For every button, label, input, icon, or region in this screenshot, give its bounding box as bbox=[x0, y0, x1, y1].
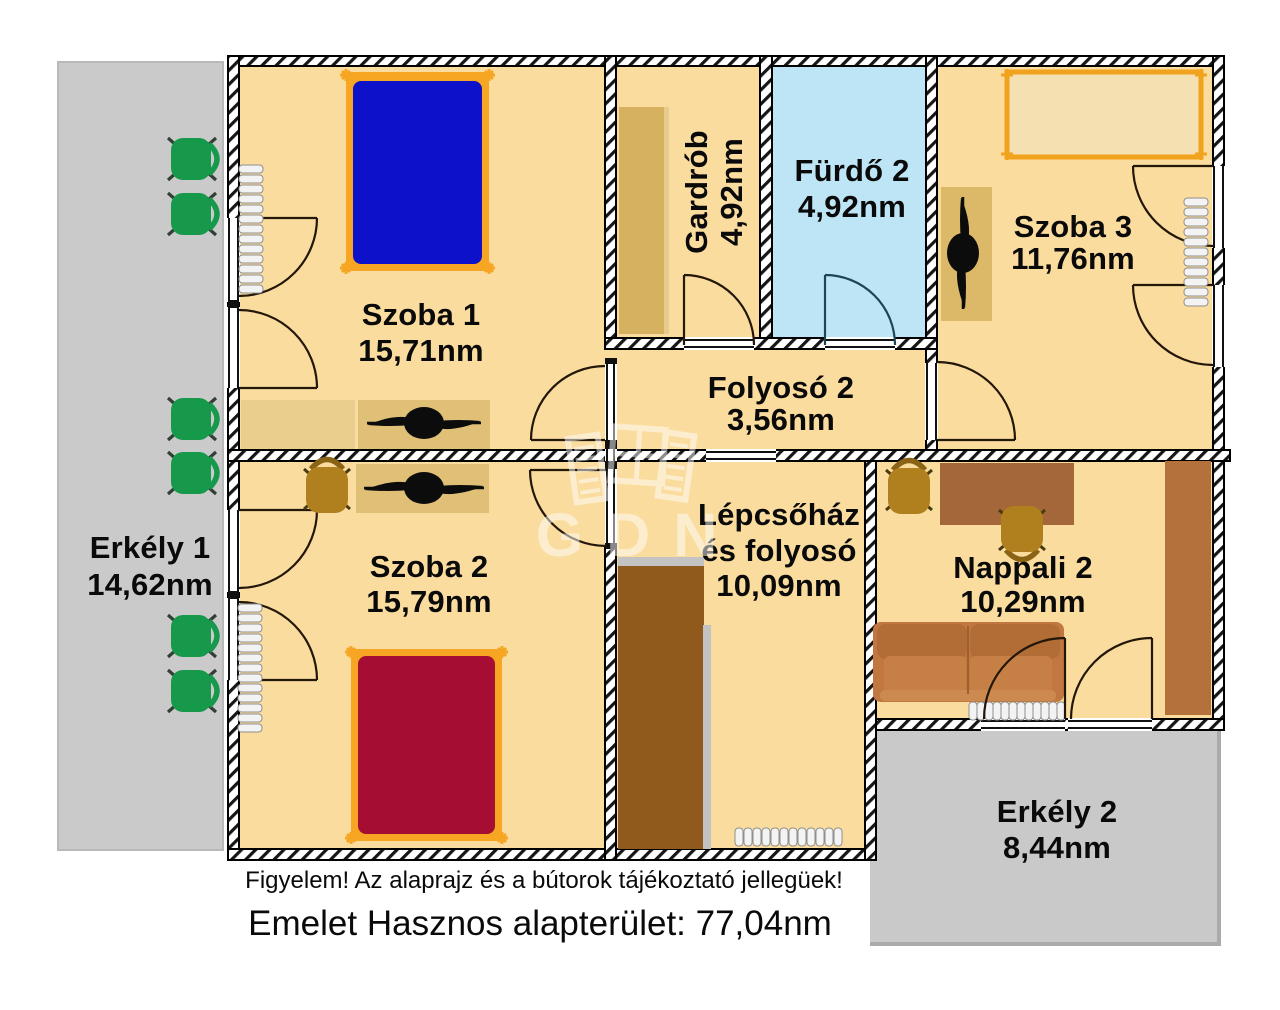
svg-text:Nappali 2: Nappali 2 bbox=[953, 550, 1093, 585]
svg-text:Szoba 2: Szoba 2 bbox=[370, 549, 489, 584]
svg-text:3,56nm: 3,56nm bbox=[727, 402, 835, 437]
svg-text:Erkély 1: Erkély 1 bbox=[90, 530, 211, 565]
svg-text:11,76nm: 11,76nm bbox=[1011, 241, 1135, 276]
svg-text:Szoba 3: Szoba 3 bbox=[1014, 209, 1133, 244]
svg-text:Szoba 1: Szoba 1 bbox=[362, 297, 481, 332]
svg-text:Emelet Hasznos alapterület: 77: Emelet Hasznos alapterület: 77,04nm bbox=[248, 904, 832, 943]
svg-text:Erkély 2: Erkély 2 bbox=[997, 794, 1118, 829]
svg-text:Folyosó 2: Folyosó 2 bbox=[708, 370, 855, 405]
svg-text:15,79nm: 15,79nm bbox=[366, 584, 491, 619]
svg-text:Figyelem! Az alaprajz és a bút: Figyelem! Az alaprajz és a bútorok tájék… bbox=[245, 867, 843, 894]
svg-text:15,71nm: 15,71nm bbox=[358, 333, 483, 368]
svg-text:10,29nm: 10,29nm bbox=[960, 584, 1085, 619]
svg-text:8,44nm: 8,44nm bbox=[1003, 830, 1111, 865]
svg-text:GDN: GDN bbox=[536, 501, 741, 569]
svg-text:10,09nm: 10,09nm bbox=[716, 568, 841, 603]
svg-text:14,62nm: 14,62nm bbox=[87, 567, 212, 602]
svg-text:4,92nm: 4,92nm bbox=[798, 189, 906, 224]
svg-text:Gardrób: Gardrób bbox=[679, 130, 714, 254]
svg-text:4,92nm: 4,92nm bbox=[714, 138, 749, 246]
svg-text:Fürdő 2: Fürdő 2 bbox=[794, 153, 909, 188]
